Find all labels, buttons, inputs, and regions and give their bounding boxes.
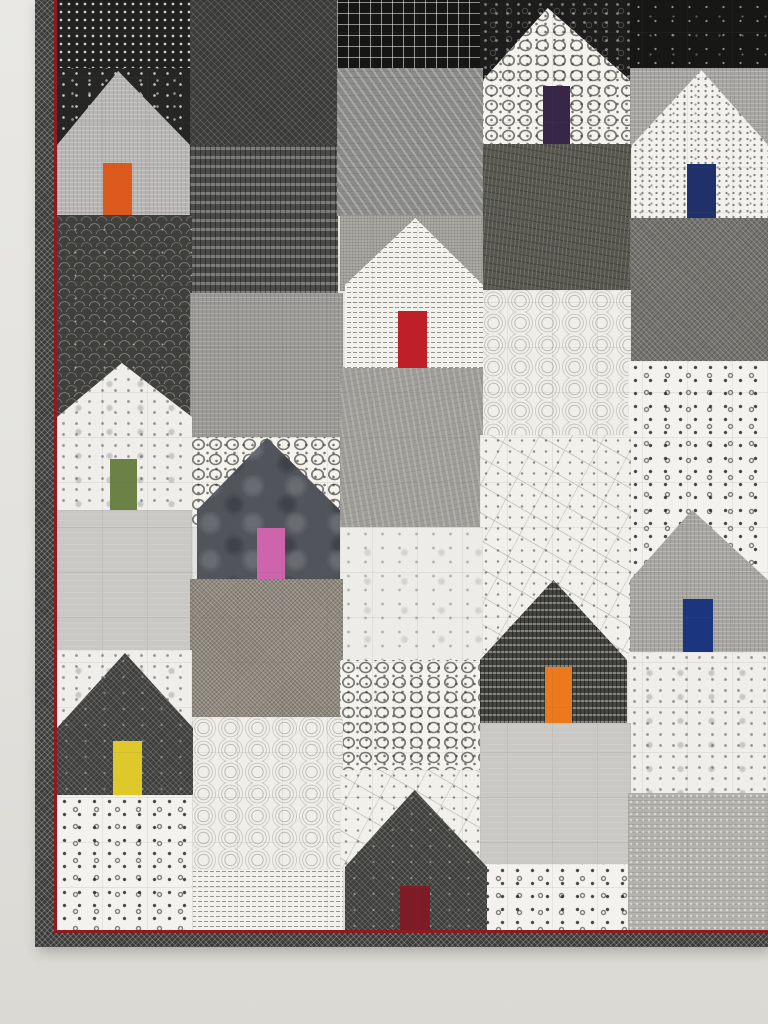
- swirl-rings-fabric: [190, 717, 343, 870]
- house-text-red-door-door: [398, 311, 427, 368]
- light-gray-fabric: [57, 510, 192, 653]
- quilt-photo: [0, 0, 768, 1024]
- black-grid-fabric: [337, 0, 483, 69]
- house-white-green-door-door: [110, 459, 137, 510]
- black-dot-rows-fabric: [57, 0, 192, 70]
- white-speckle-fabric: [628, 652, 768, 795]
- house-dark-orange-door-door: [545, 667, 572, 723]
- house-dark-maroon-door-door: [400, 886, 430, 933]
- light-gray-fabric: [480, 723, 631, 865]
- dark-crosshatch-fabric: [190, 0, 338, 146]
- gray-lace-fabric: [628, 793, 768, 933]
- house-linen-blue-door-door: [683, 599, 713, 652]
- white-grunge-fabric: [340, 527, 483, 678]
- house-white-navy-door-door: [687, 164, 716, 218]
- flange-left: [54, 0, 57, 933]
- house-white-purple-door-door: [543, 86, 570, 144]
- gray-grunge-fabric: [340, 367, 483, 528]
- swirl-rings-fabric: [480, 290, 631, 436]
- gray-weave-fabric: [630, 218, 768, 362]
- white-square-dots-fabric: [480, 864, 631, 932]
- binding-left: [35, 0, 54, 947]
- binding-bottom: [35, 933, 768, 947]
- house-slate-pink-door-door: [257, 528, 285, 579]
- wall: { "scene": { "alt_text": "Modern patchwo…: [0, 0, 768, 1024]
- house-dark-yellow-door-door: [113, 741, 142, 795]
- dark-wavy-fabric: [483, 144, 631, 291]
- text-print-fabric: [190, 869, 343, 932]
- house-gray-orange-door-door: [103, 163, 132, 215]
- flange-bottom: [54, 930, 768, 933]
- white-square-dots-fabric: [57, 795, 193, 932]
- gray-diagonal-fabric: [337, 68, 483, 216]
- black-flecked-fabric: [630, 0, 768, 70]
- gray-linen-fabric: [190, 293, 343, 438]
- tweed-fabric: [190, 579, 343, 719]
- dark-dash-fabric: [190, 145, 338, 294]
